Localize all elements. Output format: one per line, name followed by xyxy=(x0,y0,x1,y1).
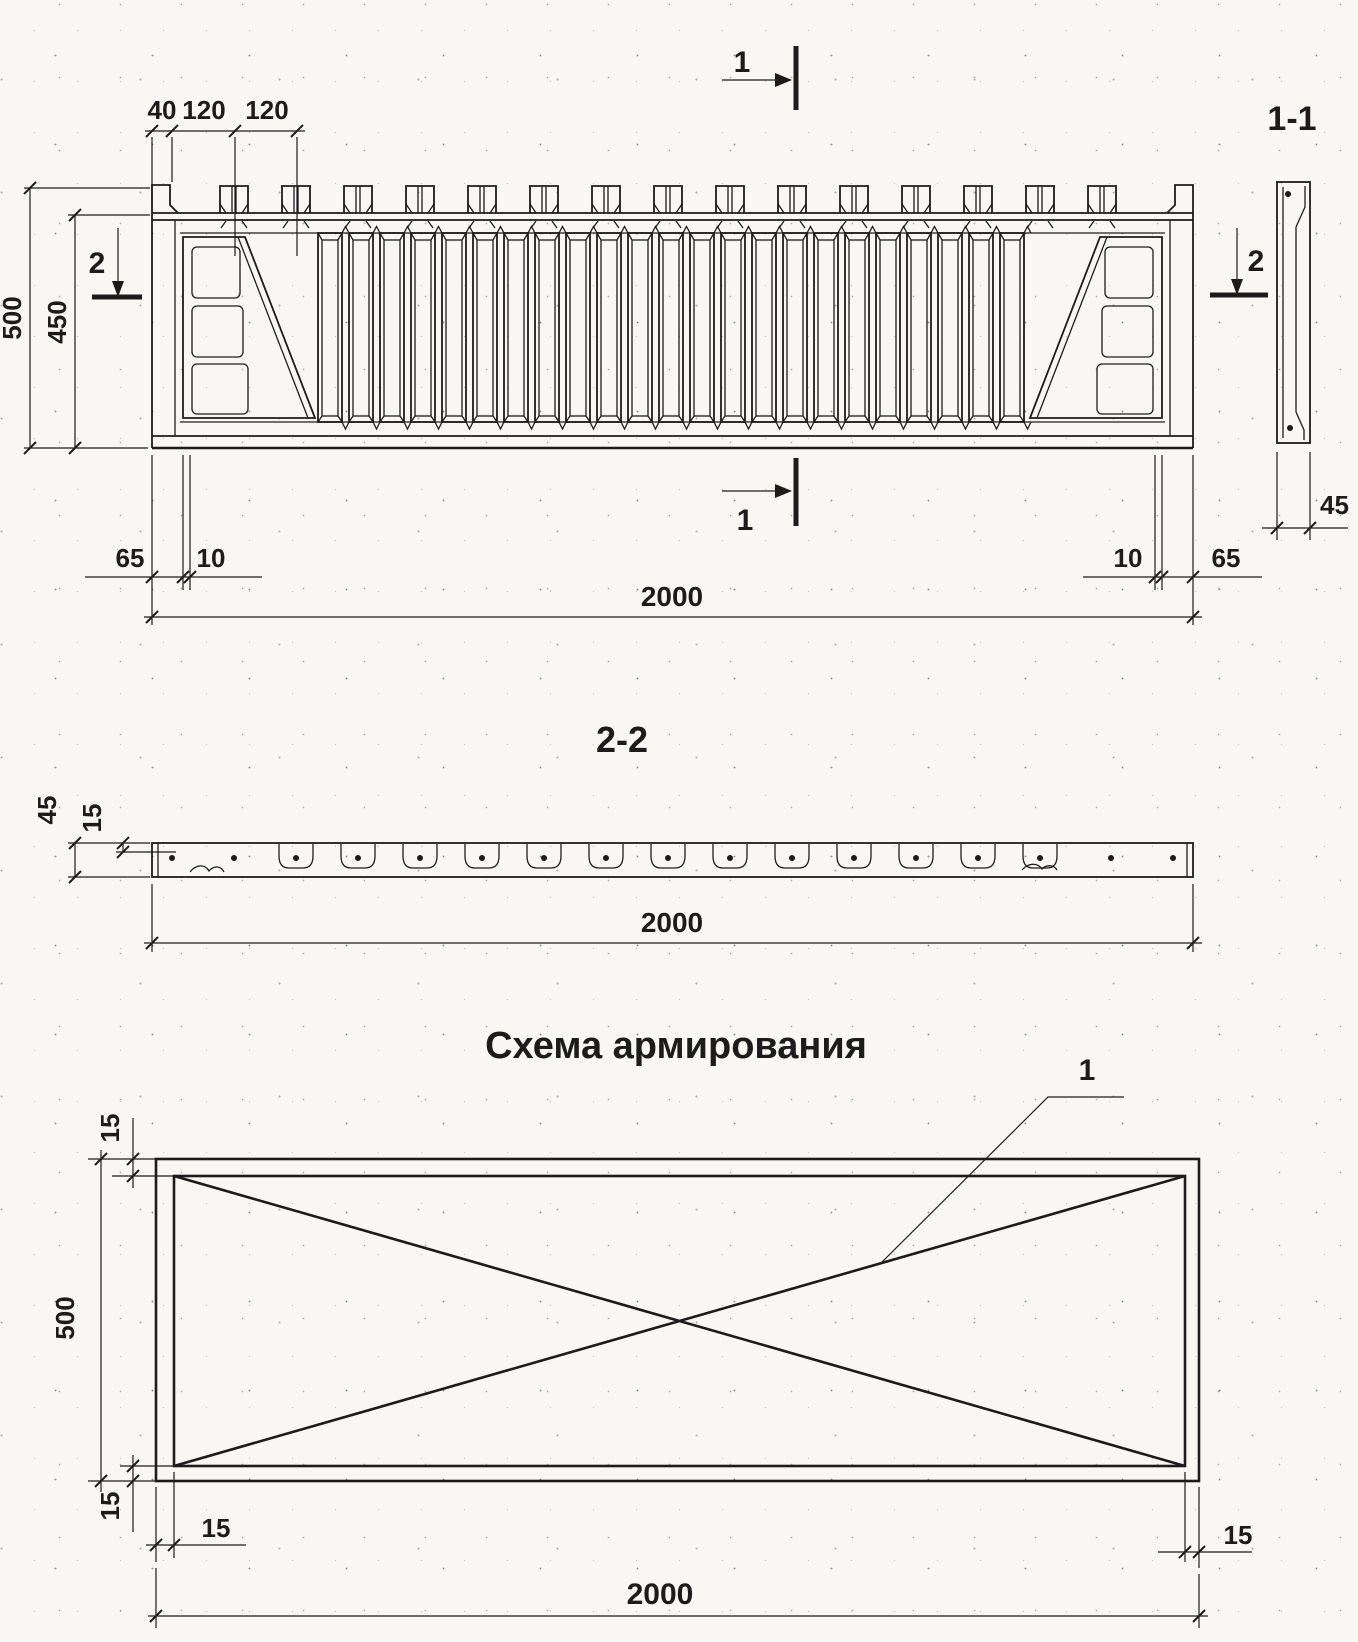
dim-label-scheme-height: 500 xyxy=(50,1296,80,1339)
dim-overall-length: 2000 xyxy=(144,581,1202,623)
section-marker-1-bottom-label: 1 xyxy=(737,504,754,537)
section-marker-2-left-label: 2 xyxy=(89,247,106,280)
dim-label-right-gap: 10 xyxy=(1114,543,1143,573)
callout-1-label: 1 xyxy=(1079,1054,1096,1087)
fence-slat xyxy=(318,227,349,430)
fence-tooth xyxy=(282,186,310,228)
dim-label-right-cover: 15 xyxy=(1224,1520,1253,1550)
fence-tooth xyxy=(654,186,682,228)
section-2-2-title: 2-2 xyxy=(596,719,648,760)
technical-drawing: 40 120 120 500 450 2 2 xyxy=(0,0,1358,1642)
dim-label-body-height: 450 xyxy=(42,300,72,343)
section-marker-2-right-label: 2 xyxy=(1248,245,1265,278)
fence-slat xyxy=(659,227,690,430)
rebar-pocket xyxy=(1023,844,1057,868)
rebar-pocket xyxy=(899,844,933,868)
rebar-pocket xyxy=(527,844,561,868)
dim-label-top-cover: 15 xyxy=(95,1114,125,1143)
teeth-row xyxy=(220,186,1116,228)
dim-label-left-cover: 15 xyxy=(202,1513,231,1543)
fence-slat xyxy=(752,227,783,430)
slat-row xyxy=(318,227,1031,430)
dim-bottom-right: 10 65 xyxy=(1083,455,1262,625)
dim-label-pitch-1: 120 xyxy=(182,95,225,125)
fence-slat xyxy=(907,227,938,430)
right-ornament xyxy=(1030,237,1162,418)
dim-label-total-height: 500 xyxy=(0,296,27,339)
fence-slat xyxy=(473,227,504,430)
fence-slat xyxy=(814,227,845,430)
dim-label-length: 2000 xyxy=(641,581,703,612)
fence-tooth xyxy=(716,186,744,228)
fence-slat xyxy=(876,227,907,430)
section-marker-1-top-label: 1 xyxy=(734,46,751,79)
reinforcement-scheme: Схема армирования 1 500 15 15 15 15 xyxy=(50,1025,1252,1628)
dim-label-pitch-2: 120 xyxy=(245,95,288,125)
dim-strip-length: 2000 xyxy=(144,884,1202,952)
section-2-2: 2-2 45 15 2000 xyxy=(32,719,1202,952)
dim-strip-left: 45 15 xyxy=(32,796,176,883)
fence-tooth xyxy=(840,186,868,228)
dim-label-right-margin: 65 xyxy=(1212,543,1241,573)
rebar-pocket xyxy=(713,844,747,868)
break-mark-left xyxy=(190,866,224,872)
fence-tooth xyxy=(406,186,434,228)
rebar-pocket xyxy=(341,844,375,868)
panel-outline xyxy=(152,185,1193,448)
drawing-sheet: 40 120 120 500 450 2 2 xyxy=(0,0,1358,1642)
fence-slat xyxy=(349,227,380,430)
rebar-pocket xyxy=(837,844,871,868)
dim-heights: 500 450 xyxy=(0,182,150,454)
fence-tooth xyxy=(902,186,930,228)
section-marker-1-top: 1 xyxy=(722,46,796,110)
dim-label-strip-thickness: 45 xyxy=(32,796,62,825)
dim-scheme-length: 2000 xyxy=(148,1568,1208,1628)
dim-label-axis-offset: 15 xyxy=(77,804,107,833)
rebar-pocket xyxy=(961,844,995,868)
dim-bottom-left: 65 10 xyxy=(85,455,262,625)
fence-slat xyxy=(690,227,721,430)
dim-label-strip-length: 2000 xyxy=(641,907,703,938)
rebar-pocket xyxy=(775,844,809,868)
section-marker-2-left: 2 xyxy=(89,228,142,297)
dim-label-edge-offset: 40 xyxy=(148,95,177,125)
fence-slat xyxy=(938,227,969,430)
left-ornament xyxy=(183,237,315,418)
fence-tooth xyxy=(344,186,372,228)
dim-scheme-bottom-left: 15 15 xyxy=(95,1455,246,1562)
rebar-pocket xyxy=(589,844,623,868)
section-1-1-title: 1-1 xyxy=(1267,100,1316,138)
section-1-1-body xyxy=(1277,182,1310,443)
fence-tooth xyxy=(468,186,496,228)
fence-slat xyxy=(597,227,628,430)
fence-slat xyxy=(783,227,814,430)
rebar-diagonals xyxy=(174,1176,1185,1466)
dim-label-section-thickness: 45 xyxy=(1320,490,1349,520)
fence-slat xyxy=(845,227,876,430)
dim-label-left-gap: 10 xyxy=(197,543,226,573)
rebar-pocket xyxy=(279,844,313,868)
fence-slat xyxy=(411,227,442,430)
fence-slat xyxy=(721,227,752,430)
section-marker-2-right: 2 xyxy=(1210,228,1268,295)
dim-label-scheme-length: 2000 xyxy=(627,1578,694,1611)
dim-section-thickness: 45 xyxy=(1262,452,1349,540)
fence-tooth xyxy=(1026,186,1054,228)
fence-slat xyxy=(566,227,597,430)
reinforcement-scheme-title: Схема армирования xyxy=(485,1025,867,1067)
fence-slat xyxy=(442,227,473,430)
fence-slat xyxy=(380,227,411,430)
dim-top-pitch: 40 120 120 xyxy=(145,95,305,256)
fence-tooth xyxy=(530,186,558,228)
fence-tooth xyxy=(778,186,806,228)
dim-label-bottom-cover: 15 xyxy=(95,1492,125,1521)
fence-slat xyxy=(969,227,1000,430)
dim-label-left-margin: 65 xyxy=(116,543,145,573)
section-1-1: 1-1 45 xyxy=(1262,100,1349,540)
fence-slat xyxy=(535,227,566,430)
fence-slat xyxy=(504,227,535,430)
fence-tooth xyxy=(1088,186,1116,228)
dim-scheme-bottom-right: 15 xyxy=(1158,1472,1252,1568)
rebar-pocket xyxy=(651,844,685,868)
front-view: 40 120 120 500 450 2 2 xyxy=(0,46,1268,625)
rebar-pocket xyxy=(403,844,437,868)
fence-slat xyxy=(1000,227,1031,430)
fence-slat xyxy=(628,227,659,430)
rebar-pocket xyxy=(465,844,499,868)
rebar-pockets xyxy=(279,844,1057,868)
section-2-2-strip xyxy=(152,843,1193,877)
fence-tooth xyxy=(592,186,620,228)
fence-tooth xyxy=(964,186,992,228)
section-marker-1-bottom: 1 xyxy=(722,458,796,537)
fence-tooth xyxy=(220,186,248,228)
